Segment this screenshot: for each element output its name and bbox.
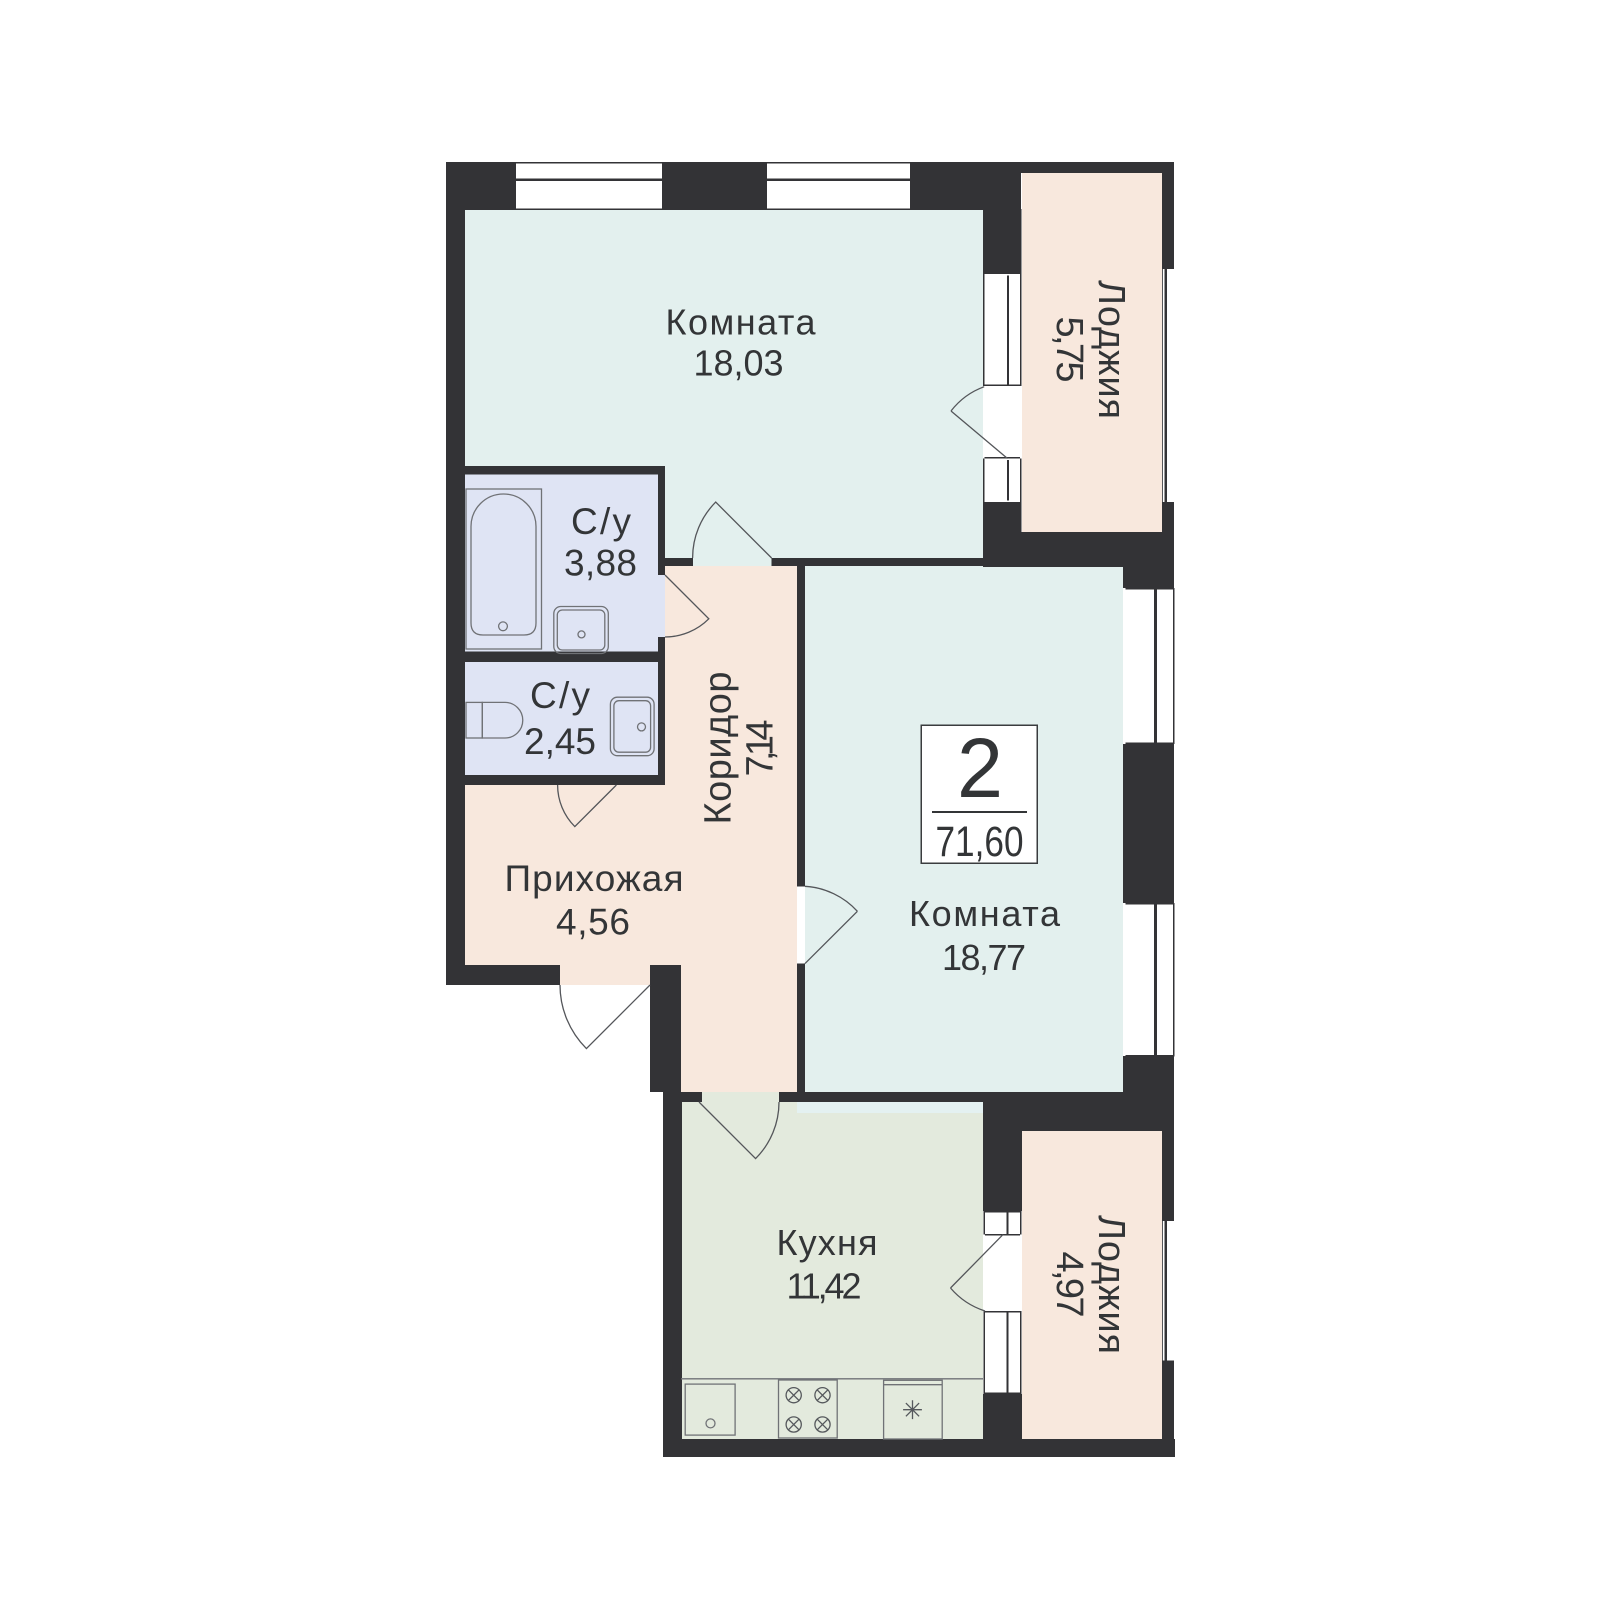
- svg-text:4,56: 4,56: [556, 902, 630, 943]
- svg-text:11,42: 11,42: [787, 1266, 862, 1307]
- svg-text:71,60: 71,60: [936, 818, 1024, 866]
- svg-text:С/у: С/у: [571, 501, 632, 542]
- svg-text:С/у: С/у: [530, 675, 591, 716]
- svg-text:18,03: 18,03: [694, 343, 784, 384]
- svg-text:Кухня: Кухня: [777, 1222, 878, 1263]
- svg-text:2,45: 2,45: [524, 721, 596, 762]
- svg-text:2: 2: [957, 721, 1003, 815]
- svg-text:Прихожая: Прихожая: [505, 858, 684, 899]
- svg-text:3,88: 3,88: [564, 543, 637, 584]
- svg-text:Комната: Комната: [909, 893, 1061, 934]
- svg-text:Комната: Комната: [666, 302, 817, 343]
- svg-text:18,77: 18,77: [942, 937, 1026, 978]
